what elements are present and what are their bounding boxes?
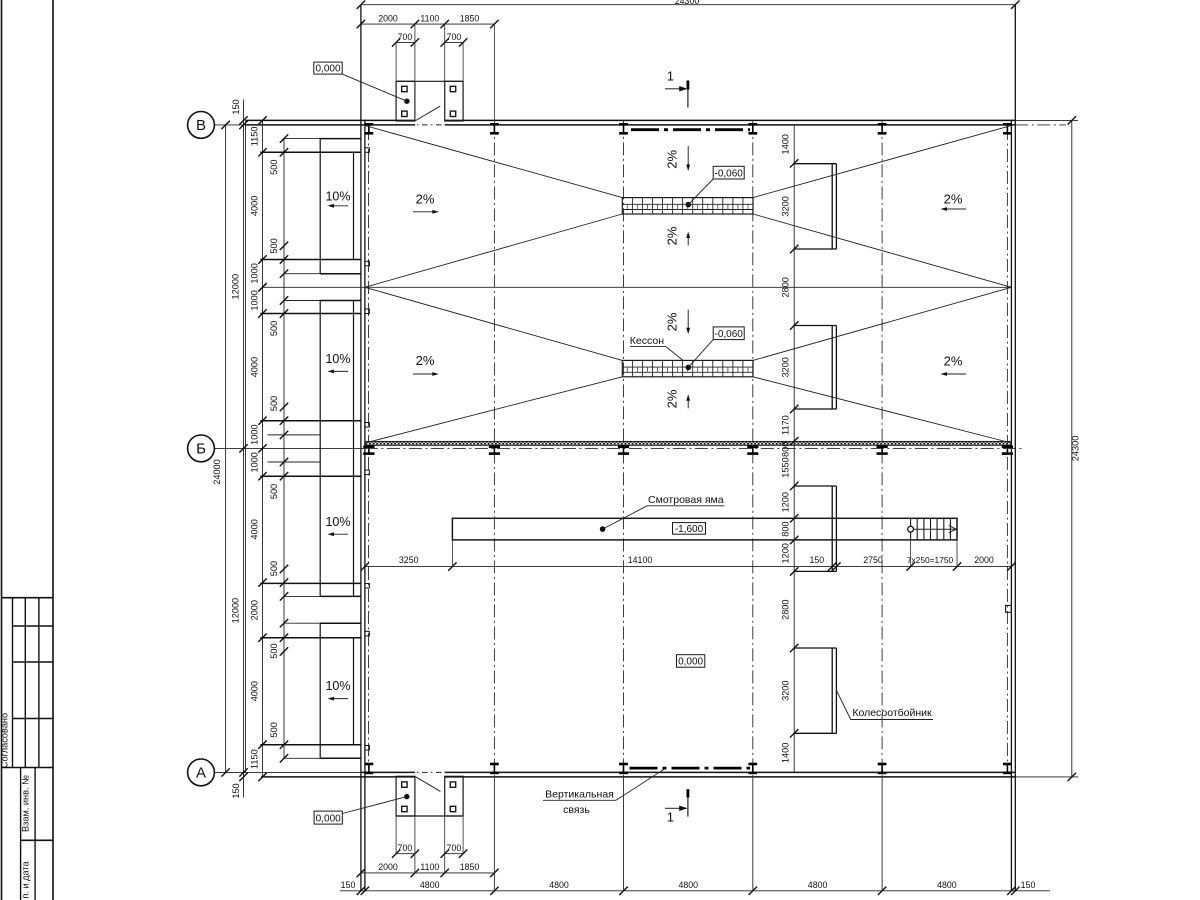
svg-text:1150: 1150 <box>250 749 260 769</box>
svg-text:В: В <box>196 117 206 134</box>
svg-text:2%: 2% <box>416 192 435 207</box>
svg-text:800: 800 <box>780 521 790 536</box>
svg-text:1200: 1200 <box>780 543 790 563</box>
svg-text:7х250=1750: 7х250=1750 <box>907 555 954 565</box>
svg-text:500: 500 <box>269 238 279 253</box>
svg-text:Смотровая яма: Смотровая яма <box>648 494 724 506</box>
svg-text:700: 700 <box>398 843 413 853</box>
svg-text:2%: 2% <box>944 353 963 368</box>
svg-text:А: А <box>196 765 206 782</box>
svg-text:500: 500 <box>269 722 279 737</box>
svg-text:150: 150 <box>341 880 356 890</box>
svg-text:24000: 24000 <box>212 459 222 485</box>
svg-text:Вертикальная: Вертикальная <box>545 788 614 800</box>
svg-text:п. и дата: п. и дата <box>20 860 30 898</box>
svg-text:1200: 1200 <box>780 492 790 512</box>
svg-text:2%: 2% <box>665 226 680 245</box>
svg-text:700: 700 <box>447 32 462 42</box>
svg-text:4800: 4800 <box>679 880 699 890</box>
svg-text:1000: 1000 <box>250 424 260 444</box>
svg-text:500: 500 <box>269 484 279 499</box>
svg-text:150: 150 <box>1021 880 1036 890</box>
svg-text:3200: 3200 <box>780 680 790 700</box>
svg-text:4800: 4800 <box>549 880 569 890</box>
svg-text:1100: 1100 <box>420 862 439 872</box>
svg-text:1170: 1170 <box>780 415 790 435</box>
svg-text:800: 800 <box>780 442 790 457</box>
svg-text:2%: 2% <box>416 353 435 368</box>
svg-text:-0,060: -0,060 <box>715 168 744 179</box>
svg-text:1400: 1400 <box>780 743 790 763</box>
svg-text:2%: 2% <box>665 389 680 408</box>
svg-text:4800: 4800 <box>808 880 828 890</box>
svg-text:1850: 1850 <box>460 13 480 23</box>
svg-text:Колесоотбойник: Колесоотбойник <box>852 707 932 719</box>
svg-text:Кессон: Кессон <box>630 335 664 347</box>
svg-text:12000: 12000 <box>230 598 240 624</box>
svg-text:1: 1 <box>667 69 674 84</box>
svg-text:150: 150 <box>809 555 824 565</box>
svg-text:1850: 1850 <box>460 862 480 872</box>
svg-text:500: 500 <box>269 396 279 411</box>
svg-text:2000: 2000 <box>974 555 994 565</box>
svg-text:10%: 10% <box>325 515 350 529</box>
svg-text:0,000: 0,000 <box>316 813 341 824</box>
svg-text:2%: 2% <box>665 312 680 331</box>
svg-text:150: 150 <box>231 783 241 798</box>
svg-text:10%: 10% <box>325 679 350 693</box>
svg-text:4000: 4000 <box>250 196 260 216</box>
svg-text:700: 700 <box>447 843 462 853</box>
svg-text:2000: 2000 <box>250 600 260 620</box>
svg-text:связь: связь <box>563 804 590 816</box>
svg-text:2800: 2800 <box>780 277 790 297</box>
svg-text:14100: 14100 <box>628 555 653 565</box>
svg-text:500: 500 <box>269 321 279 336</box>
svg-text:1: 1 <box>667 810 674 825</box>
svg-text:500: 500 <box>269 160 279 175</box>
svg-text:4800: 4800 <box>420 880 440 890</box>
svg-text:4000: 4000 <box>250 681 260 701</box>
svg-text:10%: 10% <box>325 190 350 204</box>
svg-text:2800: 2800 <box>780 599 790 619</box>
svg-text:24300: 24300 <box>675 0 700 6</box>
svg-text:24300: 24300 <box>1070 436 1080 462</box>
svg-text:4000: 4000 <box>250 519 260 539</box>
svg-text:1000: 1000 <box>250 263 260 283</box>
svg-text:2%: 2% <box>665 149 680 168</box>
svg-text:3200: 3200 <box>780 196 790 216</box>
svg-text:-0,060: -0,060 <box>715 329 744 340</box>
svg-text:0,000: 0,000 <box>315 64 340 75</box>
svg-text:150: 150 <box>231 99 241 114</box>
svg-text:2750: 2750 <box>863 555 883 565</box>
svg-text:Взам. инв. №: Взам. инв. № <box>20 775 30 832</box>
svg-text:1400: 1400 <box>780 134 790 154</box>
svg-text:Согласовано: Согласовано <box>0 713 10 768</box>
svg-text:4800: 4800 <box>937 880 957 890</box>
svg-text:4000: 4000 <box>250 357 260 377</box>
svg-text:1000: 1000 <box>250 290 260 310</box>
svg-text:2000: 2000 <box>378 862 398 872</box>
svg-text:12000: 12000 <box>230 274 240 300</box>
svg-text:-1,600: -1,600 <box>675 524 704 535</box>
svg-text:3250: 3250 <box>399 555 419 565</box>
svg-text:700: 700 <box>398 32 413 42</box>
svg-text:500: 500 <box>269 561 279 576</box>
svg-text:500: 500 <box>269 643 279 658</box>
svg-text:2000: 2000 <box>378 13 398 23</box>
svg-text:2%: 2% <box>944 192 963 207</box>
svg-text:3200: 3200 <box>780 357 790 377</box>
svg-text:Б: Б <box>196 441 206 458</box>
svg-text:10%: 10% <box>325 352 350 366</box>
svg-text:0,000: 0,000 <box>678 657 703 668</box>
svg-text:1150: 1150 <box>250 127 260 147</box>
svg-text:1100: 1100 <box>420 13 439 23</box>
svg-text:1550: 1550 <box>780 457 790 477</box>
svg-text:1000: 1000 <box>250 452 260 472</box>
